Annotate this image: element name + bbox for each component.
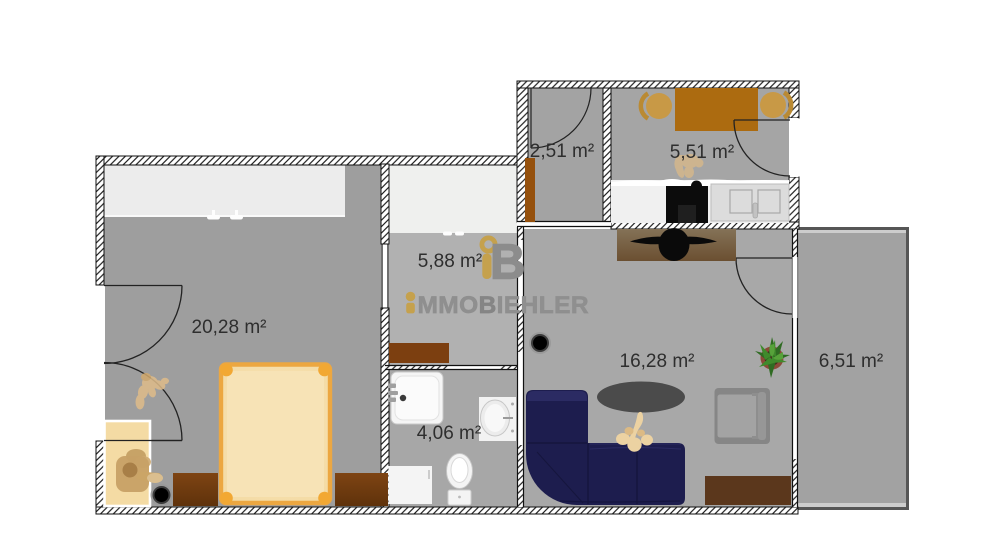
svg-text:5,51 m²: 5,51 m² [670, 142, 734, 163]
svg-text:MMOBIEHLER: MMOBIEHLER [418, 292, 589, 319]
svg-text:4,06 m²: 4,06 m² [417, 423, 481, 444]
svg-text:5,88 m²: 5,88 m² [418, 251, 482, 272]
svg-text:16,28 m²: 16,28 m² [620, 351, 695, 372]
svg-text:6,51 m²: 6,51 m² [819, 351, 883, 372]
svg-text:B: B [490, 236, 525, 290]
svg-text:20,28 m²: 20,28 m² [192, 317, 267, 338]
svg-text:2,51 m²: 2,51 m² [530, 141, 594, 162]
